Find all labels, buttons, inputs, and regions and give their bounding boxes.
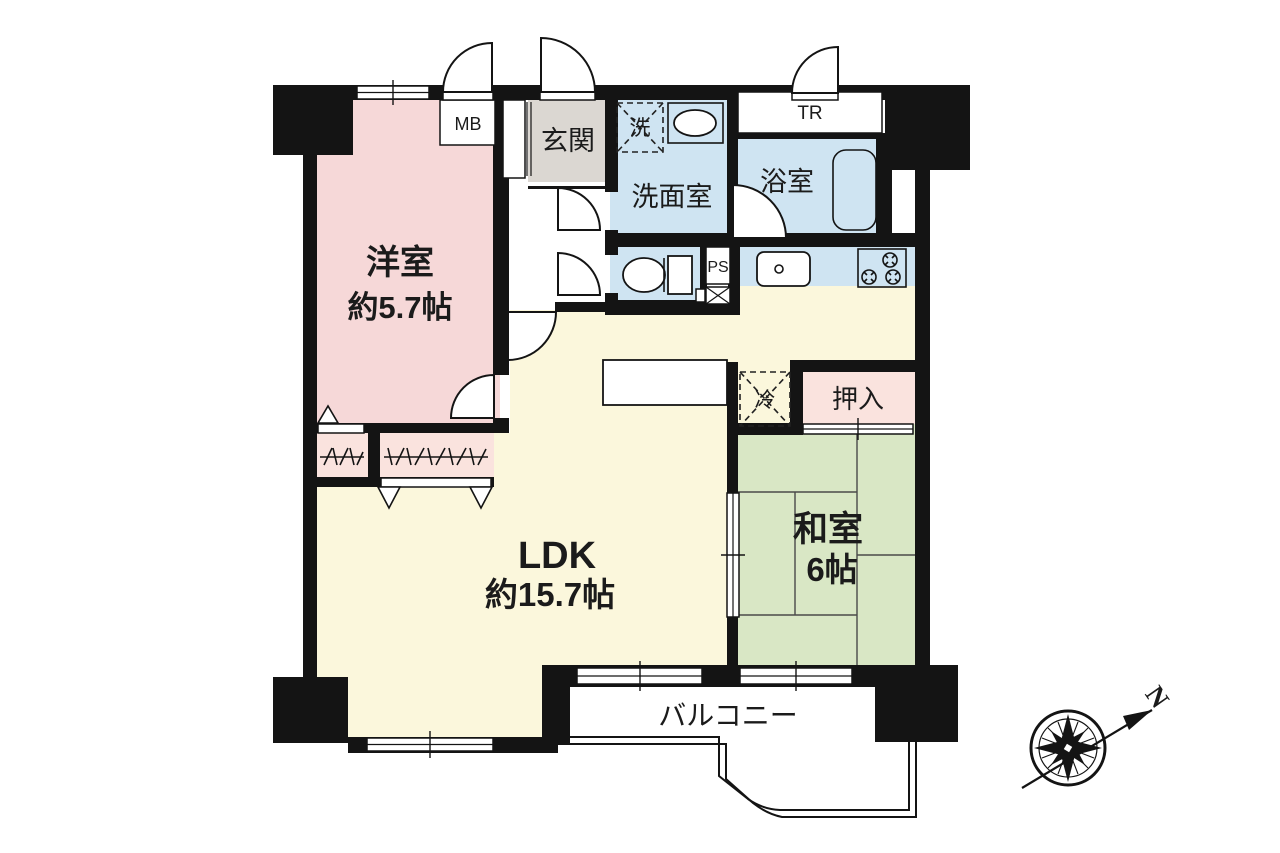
western-room-label: 洋室 [366,243,434,282]
western-room-size: 約5.7帖 [347,290,452,325]
kitchen-sink-icon [757,252,810,286]
north-arrow-icon [1123,710,1152,730]
washing-machine-label: 洗 [630,117,651,140]
door-swing [443,43,493,100]
trunk-room-label: TR [797,103,822,124]
door-swing [792,47,838,100]
toilet-icon [623,256,692,294]
shoe-cabinet [503,100,531,178]
service-niche [892,168,915,235]
compass-rose-icon: N [1022,680,1176,788]
ldk-size: 約15.7帖 [485,576,615,613]
corner-block [885,85,970,170]
counter-icon [603,360,727,405]
compass-star [1034,714,1102,782]
ldk-floor [315,675,545,737]
japanese-room-size: 6帖 [806,551,857,588]
floor-plan: 洋室 約5.7帖 LDK 約15.7帖 和室 6帖 玄関 洗面室 浴室 押入 バ… [0,0,1280,853]
closet-label: 押入 [832,384,884,414]
corner-block [875,665,958,742]
japanese-room-label: 和室 [793,509,863,549]
wardrobe-floor [376,428,494,480]
meter-box-label: MB [455,114,482,134]
balcony-railing [556,737,916,817]
entrance-label: 玄関 [541,126,595,156]
refrigerator-label: 冷 [755,389,776,412]
closet-sill [318,424,364,433]
washroom-label: 洗面室 [632,182,713,212]
ldk-label: LDK [518,535,597,577]
ldk-floor [735,286,915,364]
closet-sill [381,478,491,487]
japanese-room-floor [735,423,915,675]
entrance-door-swing [540,38,595,100]
balcony-label: バルコニー [658,700,797,731]
floor-plan-page: 洋室 約5.7帖 LDK 約15.7帖 和室 6帖 玄関 洗面室 浴室 押入 バ… [0,0,1280,853]
bathroom-label: 浴室 [760,167,814,197]
pipe-space-label: PS [707,259,728,276]
north-label: N [1139,680,1175,714]
corner-block [273,677,348,743]
shaft-box [696,287,730,304]
